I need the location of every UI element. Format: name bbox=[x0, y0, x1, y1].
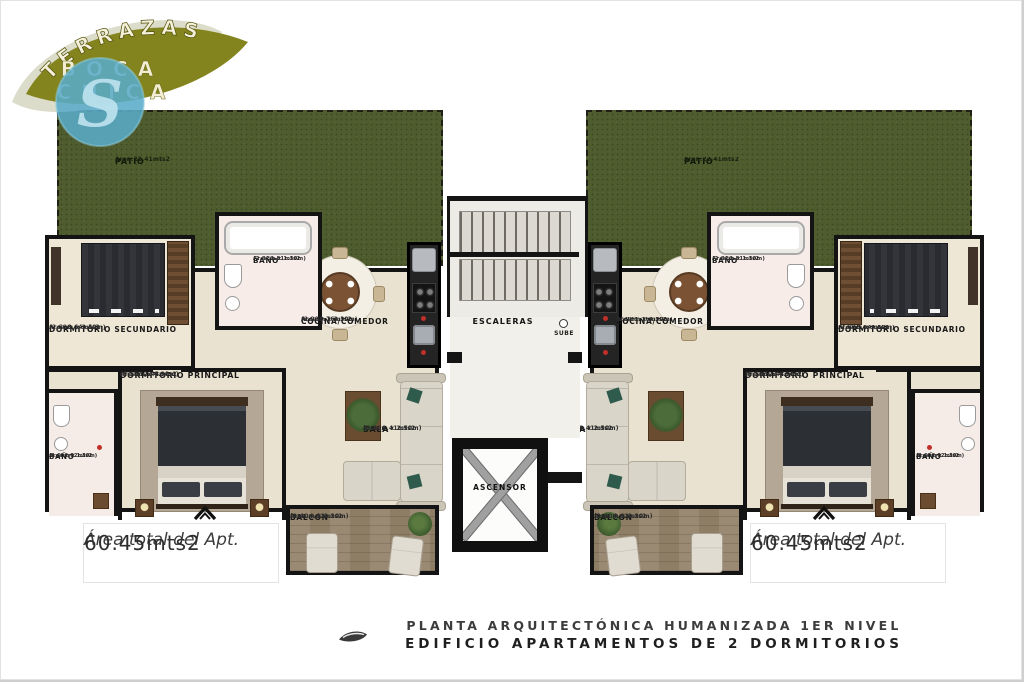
north-arrow-icon bbox=[193, 505, 217, 521]
kitchen-sink bbox=[413, 325, 435, 345]
stove bbox=[412, 283, 436, 313]
toilet bbox=[959, 405, 976, 427]
elevator-label: ASCENSOR bbox=[463, 483, 537, 492]
kitchen-counter bbox=[407, 242, 441, 368]
pillow bbox=[162, 482, 200, 497]
nightstand bbox=[760, 499, 779, 517]
nightstand bbox=[875, 499, 894, 517]
dining-chair bbox=[373, 286, 385, 302]
bed-sheet bbox=[783, 466, 871, 478]
double-bed bbox=[158, 406, 246, 466]
accent-dot bbox=[927, 445, 932, 450]
headboard bbox=[781, 397, 873, 406]
dining-chair bbox=[332, 247, 348, 259]
bed-footboard bbox=[89, 309, 159, 313]
dining-chair bbox=[332, 329, 348, 341]
wall bbox=[568, 352, 582, 363]
plant bbox=[408, 512, 432, 536]
wall bbox=[282, 368, 286, 520]
staircase bbox=[447, 196, 588, 317]
planter bbox=[648, 391, 684, 441]
column-marker bbox=[559, 319, 568, 328]
toilet bbox=[787, 264, 805, 288]
toilet bbox=[224, 264, 242, 288]
pillow bbox=[204, 482, 242, 497]
dining-chair bbox=[681, 329, 697, 341]
bathroom-lower: BAÑO Area:2.02mts2 (1.60m x 1.30m) bbox=[49, 389, 118, 516]
bathtub bbox=[717, 221, 805, 255]
apartment-right: PATIO Area:22.41mts2 DORMITORIO SECUNDAR… bbox=[582, 105, 984, 587]
wall bbox=[447, 352, 462, 363]
lounge-chair bbox=[605, 535, 641, 577]
caption-line2: EDIFICIO APARTAMENTOS DE 2 DORMITORIOS bbox=[320, 636, 960, 652]
sink bbox=[225, 296, 240, 311]
stair-treads bbox=[459, 211, 571, 253]
sink bbox=[789, 296, 804, 311]
fridge bbox=[593, 248, 617, 272]
wardrobe bbox=[167, 241, 189, 325]
closet bbox=[968, 247, 978, 305]
brand-logo: TERRAZAS BOCA CHICA S bbox=[8, 2, 263, 157]
cabinet bbox=[920, 493, 936, 509]
faucet-accent bbox=[421, 316, 426, 321]
lounge-chair bbox=[691, 533, 723, 573]
knob-accent bbox=[421, 350, 426, 355]
wall bbox=[907, 368, 911, 520]
total-area-note: Área total del Apt. 60.45mts2 bbox=[750, 523, 946, 583]
knob-accent bbox=[603, 350, 608, 355]
dining-table bbox=[320, 272, 360, 312]
pillow bbox=[787, 482, 825, 497]
bed-footboard bbox=[870, 309, 940, 313]
apartment-left: PATIO Area:22.41mts2 DORMITORIO SECUNDAR… bbox=[45, 105, 447, 587]
wall bbox=[743, 368, 747, 520]
nightstand bbox=[250, 499, 269, 517]
balcony: BALCON Area:4.62mts2 (1.40m x 3.30m) bbox=[286, 505, 439, 575]
chaise bbox=[343, 461, 401, 501]
fridge bbox=[412, 248, 436, 272]
single-bed bbox=[864, 243, 948, 317]
bed-sheet bbox=[158, 466, 246, 478]
dining-table bbox=[669, 272, 709, 312]
headboard bbox=[156, 397, 248, 406]
dining-chair bbox=[681, 247, 697, 259]
wall bbox=[876, 368, 984, 372]
bathroom-upper: BAÑO Area:2.81mts2 (2.81m x 1.30m) bbox=[215, 212, 322, 330]
cabinet bbox=[93, 493, 109, 509]
accent-dot bbox=[97, 445, 102, 450]
stove bbox=[593, 283, 617, 313]
bathroom-upper: BAÑO Area:2.81mts2 (2.81m x 1.30m) bbox=[707, 212, 814, 330]
closet bbox=[51, 247, 61, 305]
secondary-bedroom: DORMITORIO SECUNDARIO Area:8.64mts2 (2.6… bbox=[45, 235, 195, 370]
toilet bbox=[53, 405, 70, 427]
nightstand bbox=[135, 499, 154, 517]
lounge-chair bbox=[306, 533, 338, 573]
chaise bbox=[628, 461, 686, 501]
north-arrow-icon bbox=[812, 505, 836, 521]
faucet-accent bbox=[603, 316, 608, 321]
leaf-icon bbox=[338, 628, 368, 645]
floor-plan-sheet: TERRAZAS BOCA CHICA S PATIO Area:22.41mt… bbox=[0, 0, 1024, 682]
balcony: BALCON Area:4.62mts2 (1.40m x 3.30m) bbox=[590, 505, 743, 575]
stair-divider-wall bbox=[450, 252, 579, 257]
pillow bbox=[829, 482, 867, 497]
elevator-shaft: ASCENSOR bbox=[452, 438, 548, 552]
bathtub bbox=[224, 221, 312, 255]
kitchen-counter bbox=[588, 242, 622, 368]
total-area-note: Área total del Apt. 60.45mts2 bbox=[83, 523, 279, 583]
bathroom-lower: BAÑO Area:2.02mts2 (1.60m x 1.30m) bbox=[911, 389, 980, 516]
wall bbox=[548, 472, 582, 483]
single-bed bbox=[81, 243, 165, 317]
wall bbox=[118, 368, 122, 520]
brand-monogram: S bbox=[77, 67, 123, 142]
sink bbox=[54, 437, 68, 451]
stair-treads bbox=[459, 259, 571, 301]
wardrobe bbox=[840, 241, 862, 325]
lounge-chair bbox=[388, 535, 424, 577]
secondary-bedroom: DORMITORIO SECUNDARIO Area:8.64mts2 (2.6… bbox=[834, 235, 984, 370]
caption-line1: PLANTA ARQUITECTÓNICA HUMANIZADA 1ER NIV… bbox=[320, 618, 960, 633]
dining-chair bbox=[644, 286, 656, 302]
stairs-direction-label: SUBE bbox=[547, 330, 581, 337]
sink bbox=[961, 437, 975, 451]
double-bed bbox=[783, 406, 871, 466]
kitchen-sink bbox=[594, 325, 616, 345]
stairs-label: ESCALERAS bbox=[452, 317, 554, 326]
sheet-caption: PLANTA ARQUITECTÓNICA HUMANIZADA 1ER NIV… bbox=[320, 618, 960, 652]
